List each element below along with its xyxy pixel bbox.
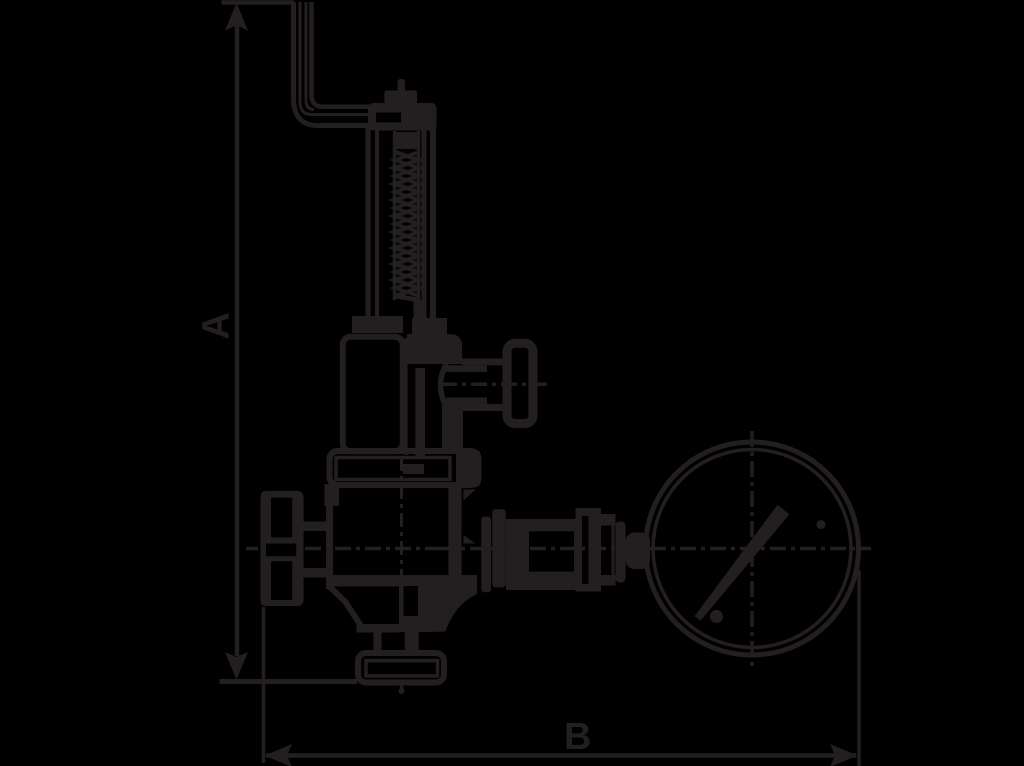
svg-text:B: B [564,716,591,758]
svg-text:A: A [196,312,238,339]
